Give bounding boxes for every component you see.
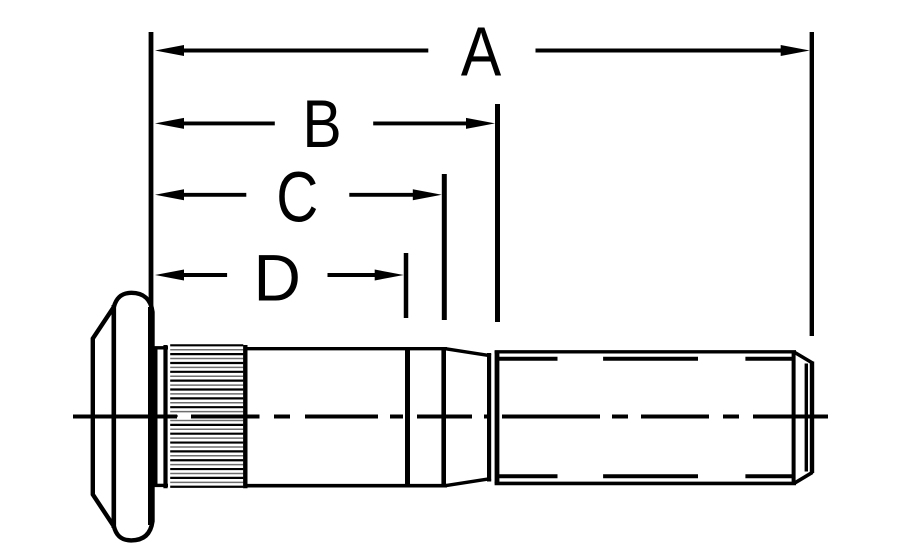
svg-text:A: A (461, 13, 502, 91)
svg-text:D: D (253, 240, 300, 314)
svg-text:C: C (276, 157, 318, 237)
svg-text:B: B (302, 86, 341, 162)
